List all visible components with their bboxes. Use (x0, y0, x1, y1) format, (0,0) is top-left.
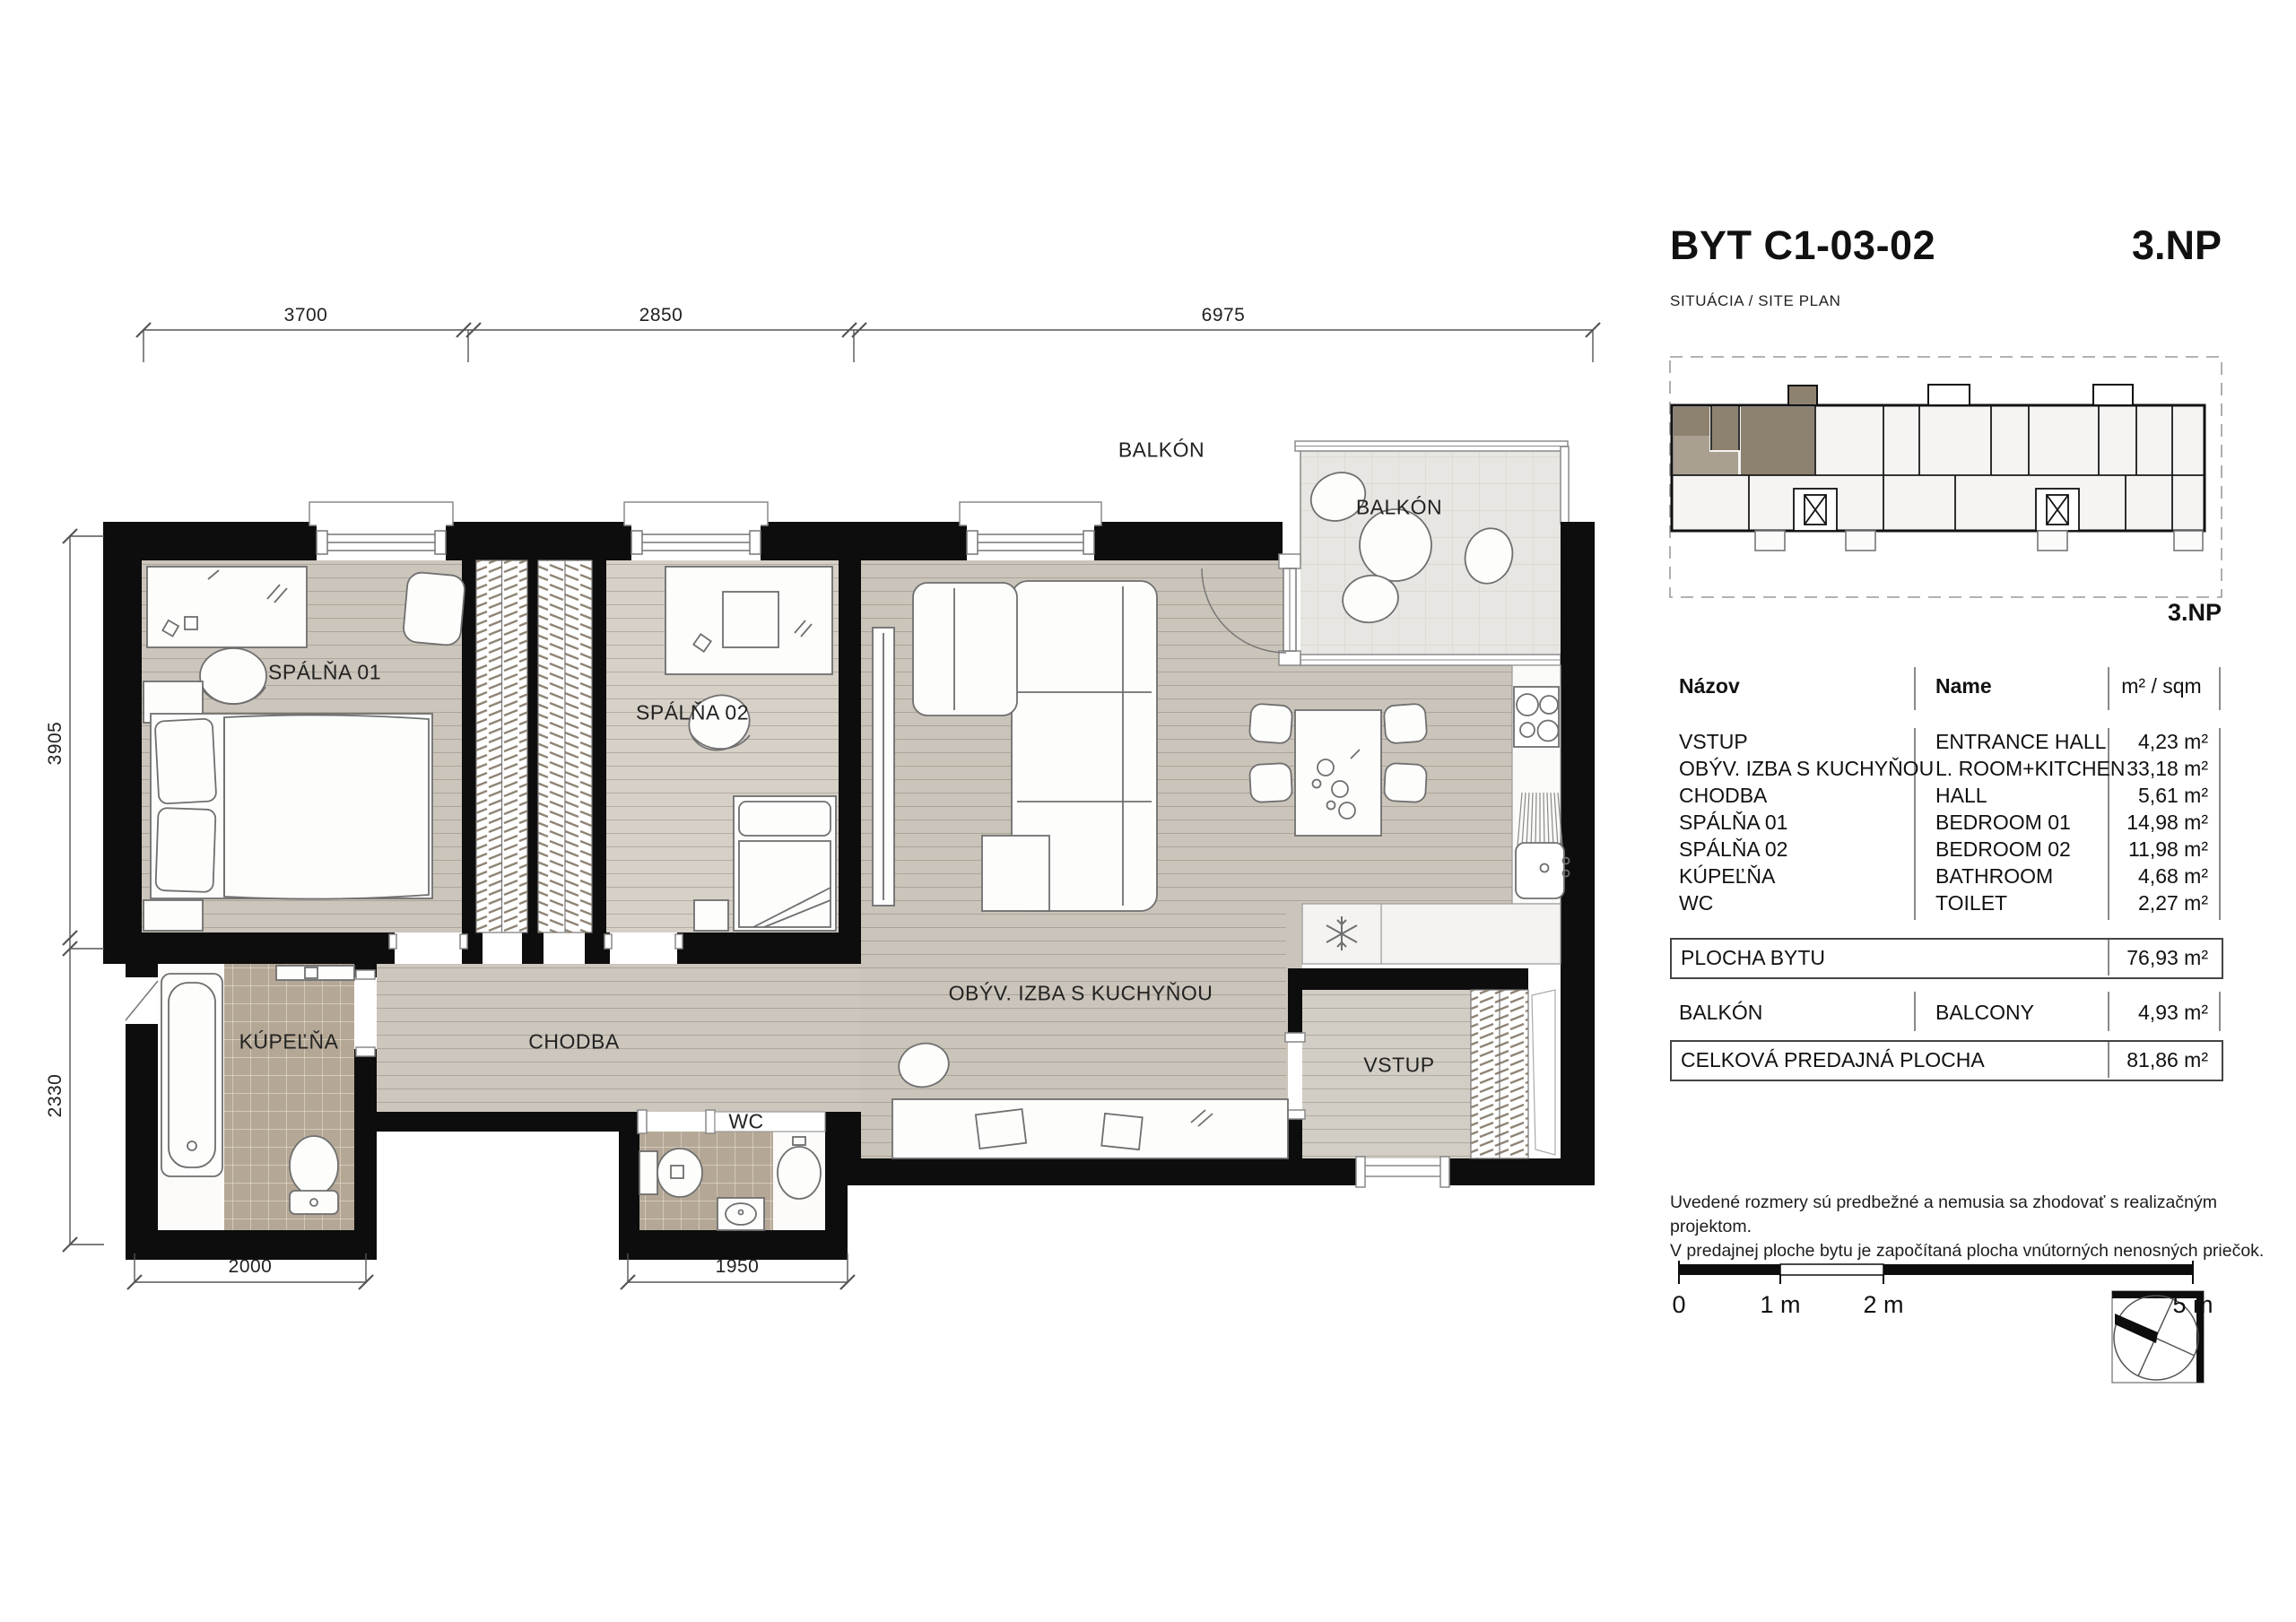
table-row-sk: WC (1679, 891, 1713, 915)
table-row-area: 33,18 m² (2113, 757, 2208, 781)
apartment-area-label: PLOCHA BYTU (1681, 946, 1825, 970)
scale-bar (1679, 1261, 2193, 1284)
table-row-area: 2,27 m² (2113, 891, 2208, 915)
table-row-en: TOILET (1935, 891, 2007, 915)
sheet-subtitle: SITUÁCIA / SITE PLAN (1670, 292, 1841, 310)
room-label-bathroom: KÚPEĽŇA (239, 1030, 339, 1054)
table-row-sk: OBÝV. IZBA S KUCHYŇOU (1679, 757, 1934, 781)
disclaimer-line-2: V predajnej ploche bytu je započítaná pl… (1670, 1239, 2296, 1263)
table-row-area: 4,23 m² (2113, 730, 2208, 754)
window-bedroom1 (309, 502, 453, 560)
site-plan-floor-label: 3.NP (2063, 599, 2222, 627)
apartment-area-value: 76,93 m² (2113, 946, 2208, 970)
dim-bottom-1: 2000 (229, 1256, 273, 1278)
table-row-area: 11,98 m² (2113, 837, 2208, 862)
apartment-code-title: BYT C1-03-02 (1670, 222, 1935, 269)
scale-label-5m: 5 m (2172, 1291, 2213, 1319)
floor-title: 3.NP (2027, 222, 2222, 269)
table-row-sk: VSTUP (1679, 730, 1748, 754)
dim-bottom-2: 1950 (716, 1256, 760, 1278)
window-bedroom2 (624, 502, 768, 560)
window-living (960, 502, 1101, 560)
scale-label-1m: 1 m (1760, 1291, 1800, 1319)
balcony (1295, 441, 1569, 665)
entry-wardrobe (1471, 990, 1555, 1158)
label-balcony-outside: BALKÓN (1118, 438, 1205, 463)
table-header-unit: m² / sqm (2117, 674, 2206, 698)
dim-left-1: 3905 (45, 722, 66, 766)
table-header-en: Name (1935, 674, 1992, 698)
table-row-sk: KÚPEĽŇA (1679, 864, 1775, 889)
table-row-en: L. ROOM+KITCHEN (1935, 757, 2126, 781)
dim-top-1: 3700 (284, 305, 328, 326)
table-row-en: BEDROOM 01 (1935, 811, 2071, 835)
room-label-wc: WC (728, 1110, 763, 1134)
table-row-sk: SPÁLŇA 01 (1679, 811, 1787, 835)
balcony-row-area: 4,93 m² (2113, 1001, 2208, 1025)
main-plan (63, 323, 1600, 1289)
table-row-en: ENTRANCE HALL (1935, 730, 2106, 754)
balcony-row-sk: BALKÓN (1679, 1001, 1762, 1025)
balcony-row-en: BALCONY (1935, 1001, 2034, 1025)
room-label-entrance: VSTUP (1363, 1054, 1434, 1078)
cooktop-icon (1514, 687, 1559, 747)
toilet-icon (290, 1136, 338, 1214)
room-label-bedroom2: SPÁLŇA 02 (636, 701, 749, 725)
table-row-sk: CHODBA (1679, 784, 1767, 808)
dim-top-2: 2850 (639, 305, 683, 326)
site-plan-minimap (1670, 357, 2222, 597)
small-basin-icon (717, 1198, 764, 1230)
wall-hung-toilet-icon (639, 1149, 702, 1197)
table-row-sk: SPÁLŇA 02 (1679, 837, 1787, 862)
bedroom1-furniture (143, 567, 465, 931)
table-row-en: BATHROOM (1935, 864, 2053, 889)
sink-icon (1516, 843, 1570, 898)
total-area-label: CELKOVÁ PREDAJNÁ PLOCHA (1681, 1048, 1985, 1072)
room-label-bedroom1: SPÁLŇA 01 (268, 661, 381, 685)
bathtub-icon (161, 974, 222, 1176)
total-area-value: 81,86 m² (2113, 1048, 2208, 1072)
table-row-area: 5,61 m² (2113, 784, 2208, 808)
dim-left-2: 2330 (45, 1074, 66, 1118)
table-row-en: BEDROOM 02 (1935, 837, 2071, 862)
disclaimer-notes: Uvedené rozmery sú predbežné a nemusia s… (1670, 1191, 2296, 1263)
table-row-area: 4,68 m² (2113, 864, 2208, 889)
dim-top-3: 6975 (1202, 305, 1246, 326)
scale-label-2m: 2 m (1863, 1291, 1903, 1319)
room-label-hall: CHODBA (528, 1030, 619, 1054)
floorplan-sheet: { "title": { "code": "BYT C1-03-02", "fl… (0, 0, 2296, 1622)
table-row-en: HALL (1935, 784, 1987, 808)
disclaimer-line-1: Uvedené rozmery sú predbežné a nemusia s… (1670, 1191, 2296, 1239)
room-label-balcony: BALKÓN (1356, 496, 1442, 520)
highlighted-unit (1674, 407, 1814, 475)
scale-label-0: 0 (1672, 1291, 1685, 1319)
room-label-living: OBÝV. IZBA S KUCHYŇOU (949, 982, 1213, 1006)
table-row-area: 14,98 m² (2113, 811, 2208, 835)
table-header-sk: Názov (1679, 674, 1740, 698)
